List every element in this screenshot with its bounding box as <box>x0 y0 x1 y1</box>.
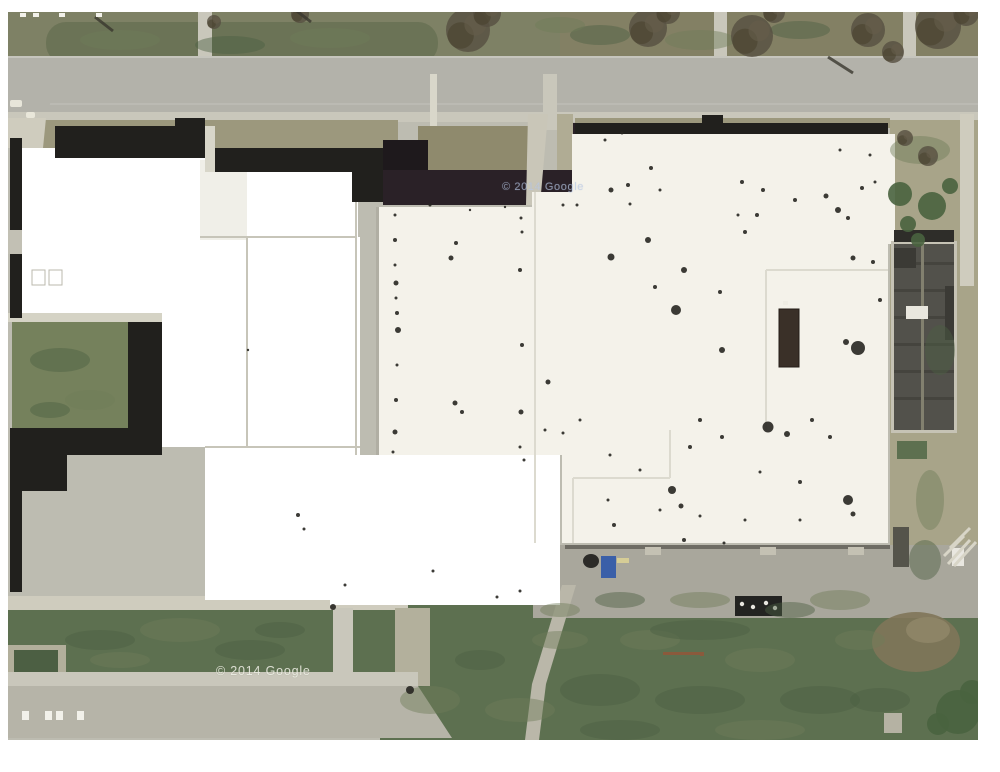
roof-vent <box>763 422 774 433</box>
roof-vent <box>604 139 607 142</box>
roof-vent <box>469 209 471 211</box>
parking-stall-mark <box>20 13 26 17</box>
roof-vent <box>719 347 725 353</box>
roof-vent <box>406 686 414 694</box>
roof-vent <box>668 486 676 494</box>
parking-stall-mark <box>56 711 63 720</box>
roof-vent <box>653 285 657 289</box>
roof-vent <box>682 538 686 542</box>
roof-vent <box>392 451 395 454</box>
parking-stall-mark <box>59 13 65 17</box>
roof-white-spot <box>906 306 928 319</box>
blue-dumpster <box>601 556 616 578</box>
roof-vent <box>612 523 616 527</box>
tree-canopy <box>865 17 882 34</box>
roof-vent <box>810 418 814 422</box>
grass-patch <box>835 630 885 650</box>
lane-line <box>8 103 978 105</box>
roof-vent <box>843 339 849 345</box>
parking-curb <box>8 684 418 686</box>
roof-vent <box>518 268 522 272</box>
wall-shadow-line <box>565 545 890 549</box>
roof-vent <box>546 380 551 385</box>
door-pad <box>760 547 776 555</box>
grass-patch <box>770 21 830 39</box>
roof-vent <box>679 504 684 509</box>
tree-canopy <box>954 8 970 24</box>
tree-canopy <box>964 3 977 16</box>
roof-vent <box>851 341 865 355</box>
dumpster-lid <box>751 605 755 609</box>
grass-patch <box>290 28 370 48</box>
roof-vent <box>851 256 856 261</box>
goal-line-object <box>663 652 701 655</box>
grass-patch <box>30 348 90 372</box>
roof-vent <box>393 430 398 435</box>
grass-patch <box>455 650 505 670</box>
roof-vent <box>688 445 692 449</box>
grass-patch <box>670 592 730 608</box>
inner-verge <box>418 126 532 170</box>
grass-patch <box>580 720 660 740</box>
grass-patch <box>560 674 640 706</box>
roof-vent <box>394 281 399 286</box>
sidewalk-row <box>8 672 418 686</box>
dumpster-lid <box>764 601 768 605</box>
roof-vent <box>784 431 790 437</box>
bush <box>888 182 912 206</box>
roof-vent <box>626 183 630 187</box>
curb-stone <box>26 112 35 118</box>
roof-vent <box>344 584 347 587</box>
roof-vent <box>846 216 850 220</box>
roof-vent <box>504 206 506 208</box>
roof-vent <box>860 186 864 190</box>
yellow-object <box>617 558 629 563</box>
roof-vent <box>723 542 726 545</box>
roof-vent <box>395 297 398 300</box>
door-pad <box>848 547 864 555</box>
grass-patch <box>925 325 955 375</box>
parking-stall-mark <box>77 711 84 720</box>
grass-patch <box>255 622 305 638</box>
roof-vent <box>496 596 499 599</box>
goal-post <box>700 652 704 656</box>
bush <box>942 178 958 194</box>
roof-vent <box>878 298 882 302</box>
tree-canopy <box>749 20 770 41</box>
roof-vent <box>851 512 856 517</box>
grass-patch <box>485 698 555 722</box>
grass-patch <box>540 603 580 617</box>
grass-patch <box>715 720 805 740</box>
bush <box>960 680 984 704</box>
building-corner-shadow <box>893 527 909 567</box>
roof-vent <box>607 499 610 502</box>
grass-patch <box>30 402 70 418</box>
roof-vent <box>521 231 524 234</box>
roof-vent <box>562 204 565 207</box>
grass-patch <box>765 602 815 618</box>
rooftop-unit-brown <box>779 309 799 367</box>
courtyard-lawn <box>12 322 128 432</box>
grass-patch <box>916 470 944 530</box>
tree-canopy <box>891 44 902 55</box>
grass-patch <box>650 620 750 640</box>
roof-vent <box>659 189 662 192</box>
parking-stall-mark <box>96 13 102 17</box>
concrete-pad <box>884 713 902 733</box>
grass-patch <box>725 648 795 672</box>
roof-vent <box>303 528 306 531</box>
roof-vent <box>835 207 841 213</box>
parking-stall-mark <box>45 711 52 720</box>
east-sidewalk <box>960 114 974 286</box>
grass-patch <box>65 630 135 650</box>
gable-ridge <box>921 244 924 430</box>
tree-canopy <box>666 3 678 15</box>
grass-patch <box>810 590 870 610</box>
shrub-bed <box>897 441 927 459</box>
roof-vent <box>740 180 744 184</box>
roof-vent <box>649 166 653 170</box>
roof-vent <box>429 204 432 207</box>
roof-vent <box>645 237 651 243</box>
curb-line <box>8 56 978 58</box>
aerial-image <box>0 0 1000 772</box>
roof-vent <box>449 256 454 261</box>
curb-stone <box>10 100 22 107</box>
roof-vent <box>659 509 662 512</box>
grass-patch <box>80 30 160 50</box>
roof-vent <box>453 401 458 406</box>
roof-vent <box>520 217 523 220</box>
roof-vent <box>698 418 702 422</box>
roof-vent <box>793 198 797 202</box>
roof-vent <box>699 515 702 518</box>
tree-canopy <box>657 8 671 22</box>
tree-canopy <box>926 149 936 159</box>
grass-patch <box>535 17 585 33</box>
white-roof-mask <box>160 237 360 447</box>
grass-patch <box>140 618 220 642</box>
roof-vent <box>798 480 802 484</box>
parking-stall-mark <box>33 13 39 17</box>
roof-vent <box>519 590 522 593</box>
roof-vent <box>460 410 464 414</box>
parking-stall-mark <box>22 711 29 720</box>
walkway <box>430 74 437 126</box>
roof-vent <box>720 435 724 439</box>
roof-vent <box>609 188 614 193</box>
roof-vent <box>843 495 853 505</box>
roof-vent <box>609 454 612 457</box>
roof-vent <box>544 429 547 432</box>
tree-canopy <box>904 132 912 140</box>
roof-vent <box>393 238 397 242</box>
grass-patch <box>195 36 265 54</box>
tree-canopy <box>485 3 499 17</box>
tree-canopy <box>213 17 220 24</box>
grass-patch <box>850 688 910 712</box>
grass-patch <box>780 686 860 714</box>
roof-vent <box>394 214 397 217</box>
roof-vent <box>395 311 399 315</box>
bush <box>927 713 949 735</box>
roof-vent <box>755 213 759 217</box>
concrete-pad <box>8 230 22 254</box>
parking-lot <box>8 686 418 738</box>
grass-patch <box>532 631 588 649</box>
roof-vent <box>743 230 747 234</box>
north-roof-bump <box>702 115 723 127</box>
grass-patch <box>215 640 285 660</box>
roof-vent <box>671 305 681 315</box>
white-pad <box>32 270 45 285</box>
roof-vent <box>629 203 632 206</box>
roof-vent <box>330 604 336 610</box>
roof-vent <box>432 570 435 573</box>
roof-vent <box>520 343 524 347</box>
white-roof-mask <box>330 455 560 605</box>
roof-vent <box>824 194 829 199</box>
roof-west-edge <box>376 207 379 455</box>
roof-vent <box>639 469 642 472</box>
roof-vent <box>396 364 399 367</box>
bush <box>900 216 916 232</box>
roof-vent <box>737 214 740 217</box>
courtyard-walk <box>8 313 162 322</box>
roof-vent <box>519 446 522 449</box>
roof-vent <box>869 154 872 157</box>
roof-vent <box>681 267 687 273</box>
gable-dark-patch <box>894 248 916 268</box>
grass-patch <box>655 686 745 714</box>
roof-vent <box>839 149 842 152</box>
roof-vent <box>579 419 582 422</box>
bush <box>911 233 925 247</box>
dumpster-lid <box>740 602 744 606</box>
entrance-verge <box>557 114 573 170</box>
roof-vent <box>621 132 624 135</box>
dirt-patch <box>906 617 950 643</box>
walkway-gap <box>205 126 215 172</box>
roof-vent <box>296 513 300 517</box>
bush <box>918 192 946 220</box>
roof-vent <box>523 459 526 462</box>
grass-patch <box>65 390 115 410</box>
roof-vent <box>874 181 877 184</box>
roof-vent <box>247 349 249 351</box>
grass-patch <box>90 652 150 668</box>
grass-patch <box>595 592 645 608</box>
grass-patch <box>665 30 735 50</box>
roof-vent <box>799 519 802 522</box>
roof-vent <box>394 264 397 267</box>
tree-canopy <box>772 4 783 15</box>
roof-vent <box>562 432 565 435</box>
roof-vent <box>828 435 832 439</box>
roof-vent <box>759 471 762 474</box>
door-pad <box>645 547 661 555</box>
satellite-map[interactable]: © 2014 Google © 2014 Google <box>0 0 1000 772</box>
roof-vent <box>608 254 615 261</box>
roof-vent <box>395 327 401 333</box>
dark-object <box>583 554 599 568</box>
lawn-path <box>333 608 353 678</box>
tree-canopy <box>764 8 777 21</box>
screenshot-frame: © 2014 Google © 2014 Google <box>0 0 1000 772</box>
roof-vent <box>454 241 458 245</box>
white-pad <box>49 270 62 285</box>
roof-vent <box>744 519 747 522</box>
roof-vent <box>718 290 722 294</box>
rooftop-unit-cap <box>783 301 788 305</box>
roof-vent <box>519 410 524 415</box>
roof-vent <box>871 260 875 264</box>
roof-vent <box>394 398 398 402</box>
roof-vent <box>761 188 765 192</box>
tree-canopy <box>474 8 491 25</box>
grass-patch <box>909 540 941 580</box>
roof-vent <box>576 204 579 207</box>
